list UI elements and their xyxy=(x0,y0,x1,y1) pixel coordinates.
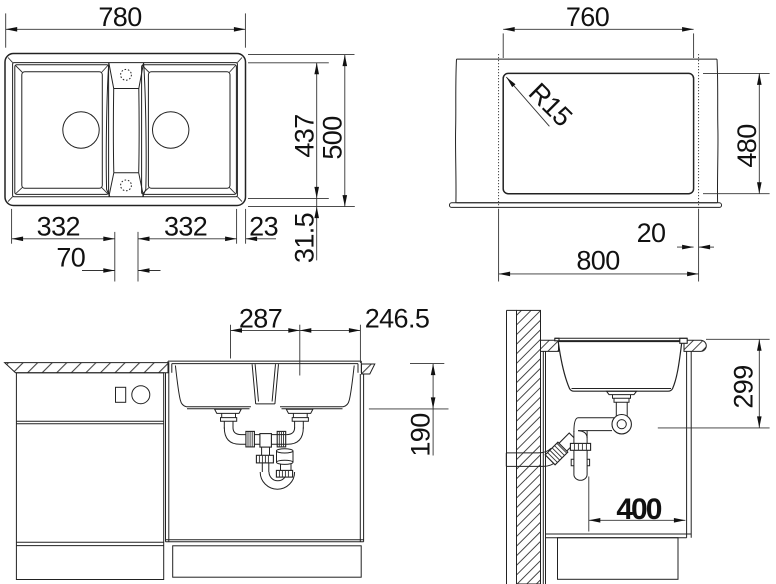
svg-text:400: 400 xyxy=(616,493,661,526)
svg-text:760: 760 xyxy=(566,2,609,32)
svg-text:780: 780 xyxy=(98,2,141,32)
svg-text:20: 20 xyxy=(637,218,666,248)
svg-text:437: 437 xyxy=(290,114,320,157)
svg-text:480: 480 xyxy=(732,124,762,167)
svg-text:23: 23 xyxy=(249,211,278,241)
svg-text:299: 299 xyxy=(729,365,759,408)
svg-text:70: 70 xyxy=(56,243,85,273)
svg-text:332: 332 xyxy=(37,211,80,241)
svg-text:190: 190 xyxy=(405,413,435,456)
svg-text:31.5: 31.5 xyxy=(290,213,320,263)
svg-text:246.5: 246.5 xyxy=(365,304,430,334)
svg-text:500: 500 xyxy=(318,116,348,159)
svg-text:287: 287 xyxy=(239,304,282,334)
svg-text:800: 800 xyxy=(576,245,619,275)
svg-text:332: 332 xyxy=(164,211,207,241)
